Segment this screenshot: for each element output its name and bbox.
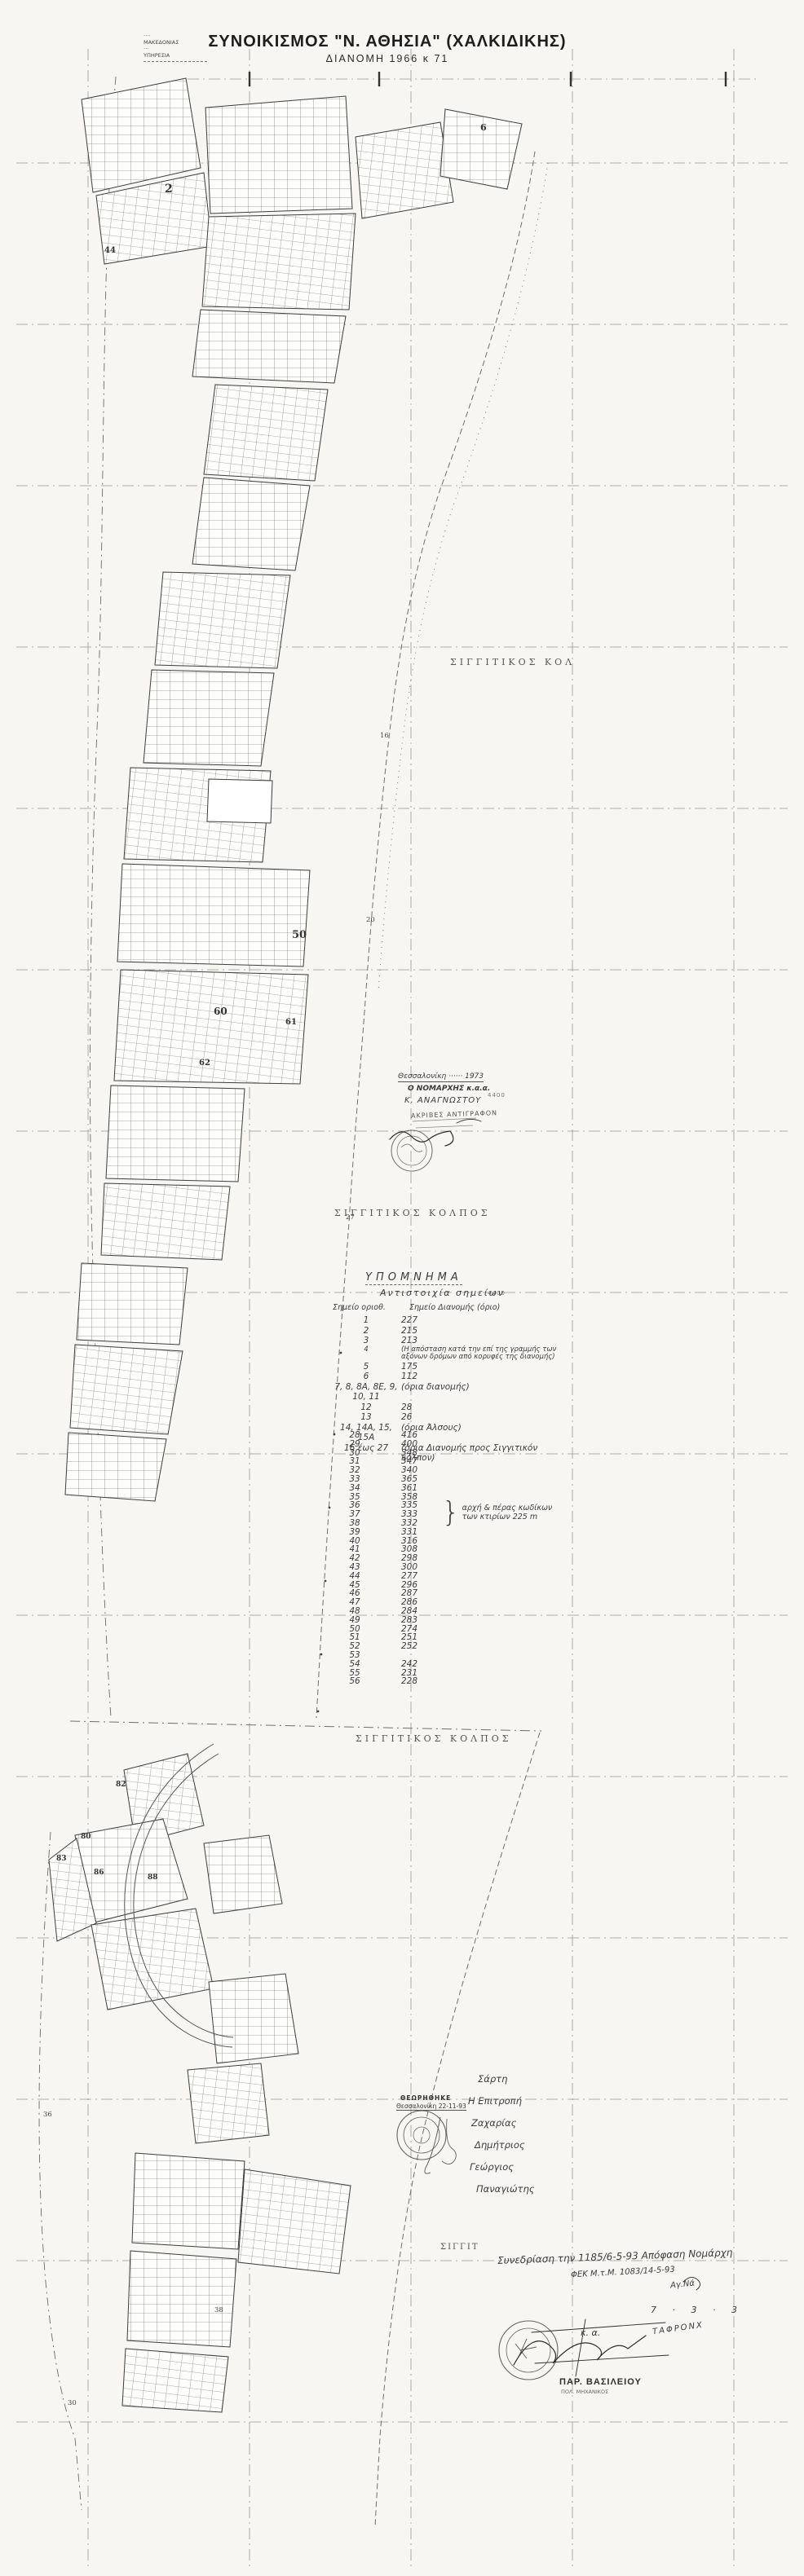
pair-point: 49 [323, 1616, 387, 1625]
pair-row: 32340 [323, 1466, 458, 1475]
pair-point: 54 [323, 1660, 387, 1669]
legend-row: 1326 [331, 1412, 576, 1423]
block-number: 61 [285, 1018, 297, 1027]
pair-value: 252 [401, 1642, 458, 1651]
pair-row: 38332 [323, 1519, 458, 1528]
pair-point: 34 [323, 1484, 387, 1493]
legend-col2: Σημείο Διανομής (όριο) [409, 1303, 500, 1312]
pair-value: 331 [401, 1528, 458, 1537]
pair-point: 44 [323, 1572, 387, 1581]
pair-point: 29 [323, 1440, 387, 1449]
pair-row: 52252 [323, 1642, 458, 1651]
legend-point: 2 [331, 1326, 401, 1336]
map-title: ΣΥΝΟΙΚΙΣΜΟΣ "Ν. ΑΘΗΣΙΑ" (ΧΑΛΚΙΔΙΚΗΣ) [200, 33, 575, 51]
pair-value: 400 [401, 1440, 458, 1449]
office-line: ΥΠΗΡΕΣΙΑ [144, 52, 207, 59]
pair-value: 228 [401, 1677, 458, 1686]
legend-value: 213 [401, 1336, 417, 1346]
legend-value: 215 [401, 1326, 417, 1336]
boundary-point-number: 36 [43, 2111, 52, 2119]
pair-row: 45296 [323, 1581, 458, 1590]
pair-row: 41308 [323, 1545, 458, 1554]
legend-value: 28 [401, 1402, 412, 1413]
issuing-office-block: ····ΜΑΚΕΔΟΝΙΑΣ···ΥΠΗΡΕΣΙΑ [144, 33, 207, 62]
boundary-point-number: 27 [346, 1213, 355, 1222]
certification-role: Ο ΝΟΜΑΡΧΗΣ κ.α.α. [408, 1085, 490, 1093]
approval-initials: κ. α. [581, 2327, 600, 2338]
pair-row: 48284 [323, 1607, 458, 1616]
map-subtitle: ΔΙΑΝΟΜΗ 1966 κ 71 [200, 53, 575, 64]
sea-label: ΣΙΓΓΙΤΙΚΟΣ ΚΟΛΠΟΣ [356, 1733, 512, 1744]
legend-value: 175 [401, 1362, 417, 1372]
pair-value: 361 [401, 1484, 458, 1493]
legend-point: 12 [331, 1402, 401, 1413]
pair-note: } αρχή & πέρας κωδίκων των κτιρίων 225 m [442, 1496, 552, 1529]
certification-date: Θεσσαλονίκη ······ 1973 [398, 1072, 484, 1082]
certification-name: Κ. ΑΝΑΓΝΩΣΤΟΥ [404, 1096, 481, 1105]
legend-value: (όρια διανομής) [401, 1382, 470, 1393]
pair-point: 39 [323, 1528, 387, 1537]
pair-row: 28416 [323, 1431, 458, 1440]
legend-row: 4(Η απόσταση κατά την επί της γραμμής τω… [331, 1346, 576, 1362]
block-number: 86 [94, 1869, 104, 1877]
pair-row: 56228 [323, 1677, 458, 1686]
pair-row: 36335 [323, 1501, 458, 1510]
pair-row: 54242 [323, 1660, 458, 1669]
boundary-point-number: 16 [380, 732, 389, 740]
pair-row: 33365 [323, 1475, 458, 1484]
legend-value: 112 [401, 1372, 417, 1382]
pair-row: 49283 [323, 1616, 458, 1625]
pair-row: 50274 [323, 1625, 458, 1634]
committee-member: Δημήτριος [475, 2134, 535, 2156]
office-line: ··· [144, 46, 207, 52]
map-title-block: ΣΥΝΟΙΚΙΣΜΟΣ "Ν. ΑΘΗΣΙΑ" (ΧΑΛΚΙΔΙΚΗΣ) ΔΙΑ… [200, 33, 575, 64]
committee-member: Γεώργιος [470, 2156, 535, 2178]
pair-point: 56 [323, 1677, 387, 1686]
pair-row: 42298 [323, 1554, 458, 1563]
legend-row: 6112 [331, 1372, 576, 1382]
legend-value: (Η απόσταση κατά την επί της γραμμής των… [401, 1346, 564, 1362]
legend-point: 13 [331, 1412, 401, 1423]
pair-value: 283 [401, 1616, 458, 1625]
committee-member: Σάρτη [478, 2068, 535, 2090]
pair-row: 40316 [323, 1537, 458, 1546]
pair-note-line1: αρχή & πέρας κωδίκων [462, 1504, 553, 1513]
legend-row: 3213 [331, 1336, 576, 1346]
pair-row: 53 [323, 1651, 458, 1660]
legend-row: 5175 [331, 1362, 576, 1372]
sea-label-partial: ΣΙΓΓΙΤ [440, 2243, 479, 2252]
legend-row: 7, 8, 8Α, 8Ε, 9, 10, 11(όρια διανομής) [331, 1382, 576, 1402]
pair-row: 35358 [323, 1493, 458, 1502]
office-line: ···· [144, 33, 207, 39]
pair-row: 29400 [323, 1440, 458, 1449]
sea-label: ΣΙΓΓΙΤΙΚΟΣ ΚΟΛΠΟΣ [334, 1208, 491, 1218]
committee-member: Ζαχαρίας [471, 2112, 535, 2134]
block-number: 60 [214, 1006, 228, 1017]
block-number: 88 [148, 1874, 158, 1882]
legend-point: 1 [331, 1315, 401, 1326]
scanned-map-sheet: ····ΜΑΚΕΔΟΝΙΑΣ···ΥΠΗΡΕΣΙΑ ΣΥΝΟΙΚΙΣΜΟΣ "Ν… [0, 0, 804, 2576]
pair-note-line2: των κτιρίων 225 m [462, 1513, 553, 1521]
engineer-name: ΠΑΡ. ΒΑΣΙΛΕΙΟΥ [559, 2377, 642, 2387]
block-number: 62 [199, 1059, 210, 1068]
pair-row: 39331 [323, 1528, 458, 1537]
legend-row: 1227 [331, 1315, 576, 1326]
point-pairs-list: 28416 29400 30348 31347 32340 33365 34 [323, 1431, 458, 1686]
pair-row: 46287 [323, 1589, 458, 1598]
pair-row: 55231 [323, 1669, 458, 1678]
engineer-title: ΠΟΛ. ΜΗΧΑΝΙΚΟΣ [561, 2389, 608, 2395]
approval-mark1: 7 · 3 · 3 [651, 2305, 744, 2315]
block-number: 83 [56, 1855, 67, 1863]
legend-point: 4 [331, 1346, 401, 1354]
pair-row: 44277 [323, 1572, 458, 1581]
boundary-point-number: 30 [68, 2399, 77, 2407]
block-number: 82 [116, 1781, 126, 1789]
legend-col1: Σημείο οριοθ. [333, 1303, 386, 1312]
pair-row: 43300 [323, 1563, 458, 1572]
legend-point: 7, 8, 8Α, 8Ε, 9, 10, 11 [331, 1382, 401, 1402]
pair-row: 47286 [323, 1598, 458, 1607]
legend-point: 6 [331, 1372, 401, 1382]
legend-row: 2215 [331, 1326, 576, 1336]
committee-list: ΣάρτηΗ ΕπιτροπήΖαχαρίαςΔημήτριοςΓεώργιος… [466, 2068, 535, 2200]
block-number: 44 [104, 246, 116, 255]
pair-row: 51251 [323, 1633, 458, 1642]
pair-row: 31347 [323, 1457, 458, 1466]
block-number: 6 [480, 122, 487, 133]
legend-value: 227 [401, 1315, 417, 1326]
legend-value: 26 [401, 1412, 412, 1423]
round-stamp-review [397, 2111, 456, 2173]
block-number: 2 [165, 183, 173, 196]
review-stamp-title: ΘΕΩΡΗΘΗΚΕ [400, 2094, 451, 2102]
committee-member: Παναγιώτης [476, 2178, 535, 2200]
block-number: 80 [81, 1833, 91, 1841]
pair-value: 242 [401, 1660, 458, 1669]
office-line: ΜΑΚΕΔΟΝΙΑΣ [144, 39, 207, 46]
review-stamp-date: Θεσσαλονίκη 22-11-93 [396, 2103, 466, 2111]
legend-column-headers: Σημείο οριοθ. Σημείο Διανομής (όριο) [333, 1303, 577, 1312]
pair-row: 37333 [323, 1510, 458, 1519]
block-number: 50 [292, 929, 307, 941]
legend-subheading: Αντιστοιχία σημείων [380, 1288, 505, 1298]
legend-point: 5 [331, 1362, 401, 1372]
legend-point: 3 [331, 1336, 401, 1346]
pair-row: 34361 [323, 1484, 458, 1493]
pair-row: 30348 [323, 1449, 458, 1458]
grid-coordinate-label: 4400 [488, 1092, 506, 1099]
legend-heading: ΥΠΟΜΝΗΜΑ [365, 1271, 462, 1285]
boundary-point-number: 20 [366, 916, 375, 924]
round-stamp-engineer [499, 2321, 558, 2380]
brace-glyph: } [442, 1496, 460, 1529]
committee-member: Η Επιτροπή [468, 2090, 535, 2112]
sea-label: ΣΙΓΓΙΤΙΚΟΣ ΚΟΛ [450, 657, 575, 667]
boundary-point-number: 38 [214, 2306, 223, 2314]
legend-row: 1228 [331, 1402, 576, 1413]
settlement-blocks [49, 78, 522, 2412]
pair-value: 277 [401, 1572, 458, 1581]
